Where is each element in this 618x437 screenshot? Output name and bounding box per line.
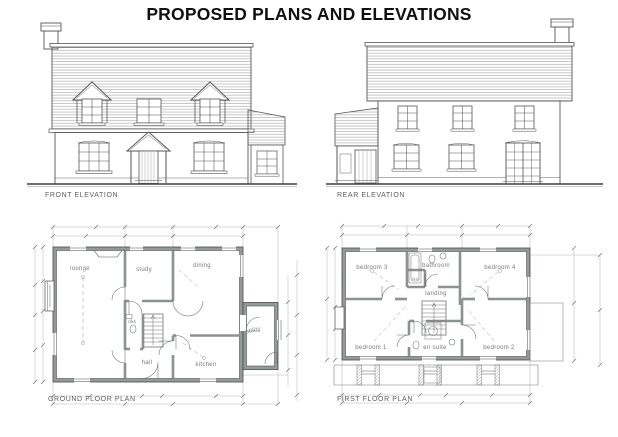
main-roof	[365, 43, 574, 102]
room-label-dining: dining	[193, 263, 211, 269]
french-doors	[503, 141, 543, 184]
room-label-study: study	[136, 267, 152, 273]
rear-elevation-drawing	[322, 13, 607, 198]
room-label-kitchen: kitchen	[195, 362, 216, 368]
first-floor-plan-drawing: bedroom 3 bathroom bedroom 4 landing a.c…	[322, 215, 612, 415]
room-label-ensuite: en suite	[423, 345, 447, 351]
room-label-landing: landing	[425, 291, 446, 297]
first-floor-windows	[396, 106, 536, 131]
front-elevation-caption: FRONT ELEVATION	[45, 192, 118, 199]
room-label-hall: hall	[142, 360, 153, 366]
bay-window	[45, 281, 54, 311]
room-label-bedroom2: bedroom 2	[483, 345, 515, 351]
ground-line	[326, 184, 603, 187]
centre-roof-window	[134, 99, 164, 126]
ground-floor-plan-drawing: lounge study dining utility kitchen hall…	[26, 215, 316, 415]
eaves-band	[49, 129, 254, 133]
ground-window-left	[76, 141, 112, 174]
side-extension	[248, 110, 285, 184]
room-label-cloaks: clks	[128, 319, 137, 324]
first-floor-plan-caption: FIRST FLOOR PLAN	[337, 396, 413, 403]
wall-projection	[335, 307, 344, 329]
chimney	[551, 19, 573, 45]
roof-eaves-band	[334, 365, 538, 385]
single-storey-roof-outline	[530, 303, 563, 361]
room-label-lounge: lounge	[70, 266, 90, 272]
rear-elevation-caption: REAR ELEVATION	[337, 192, 405, 199]
room-label-airing-cupboard: a.c.	[412, 276, 419, 281]
utility-extension-walls	[240, 303, 278, 370]
ground-line	[27, 184, 297, 187]
room-label-bathroom: bathroom	[422, 263, 450, 269]
room-label-bedroom4: bedroom 4	[484, 265, 516, 271]
front-elevation-drawing	[25, 13, 300, 198]
room-label-bedroom1: bedroom 1	[355, 345, 387, 351]
room-label-bedroom3: bedroom 3	[356, 265, 388, 271]
ground-floor-plan-caption: GROUND FLOOR PLAN	[48, 396, 136, 403]
rear-porch	[335, 108, 378, 183]
ground-window-right	[191, 141, 227, 174]
